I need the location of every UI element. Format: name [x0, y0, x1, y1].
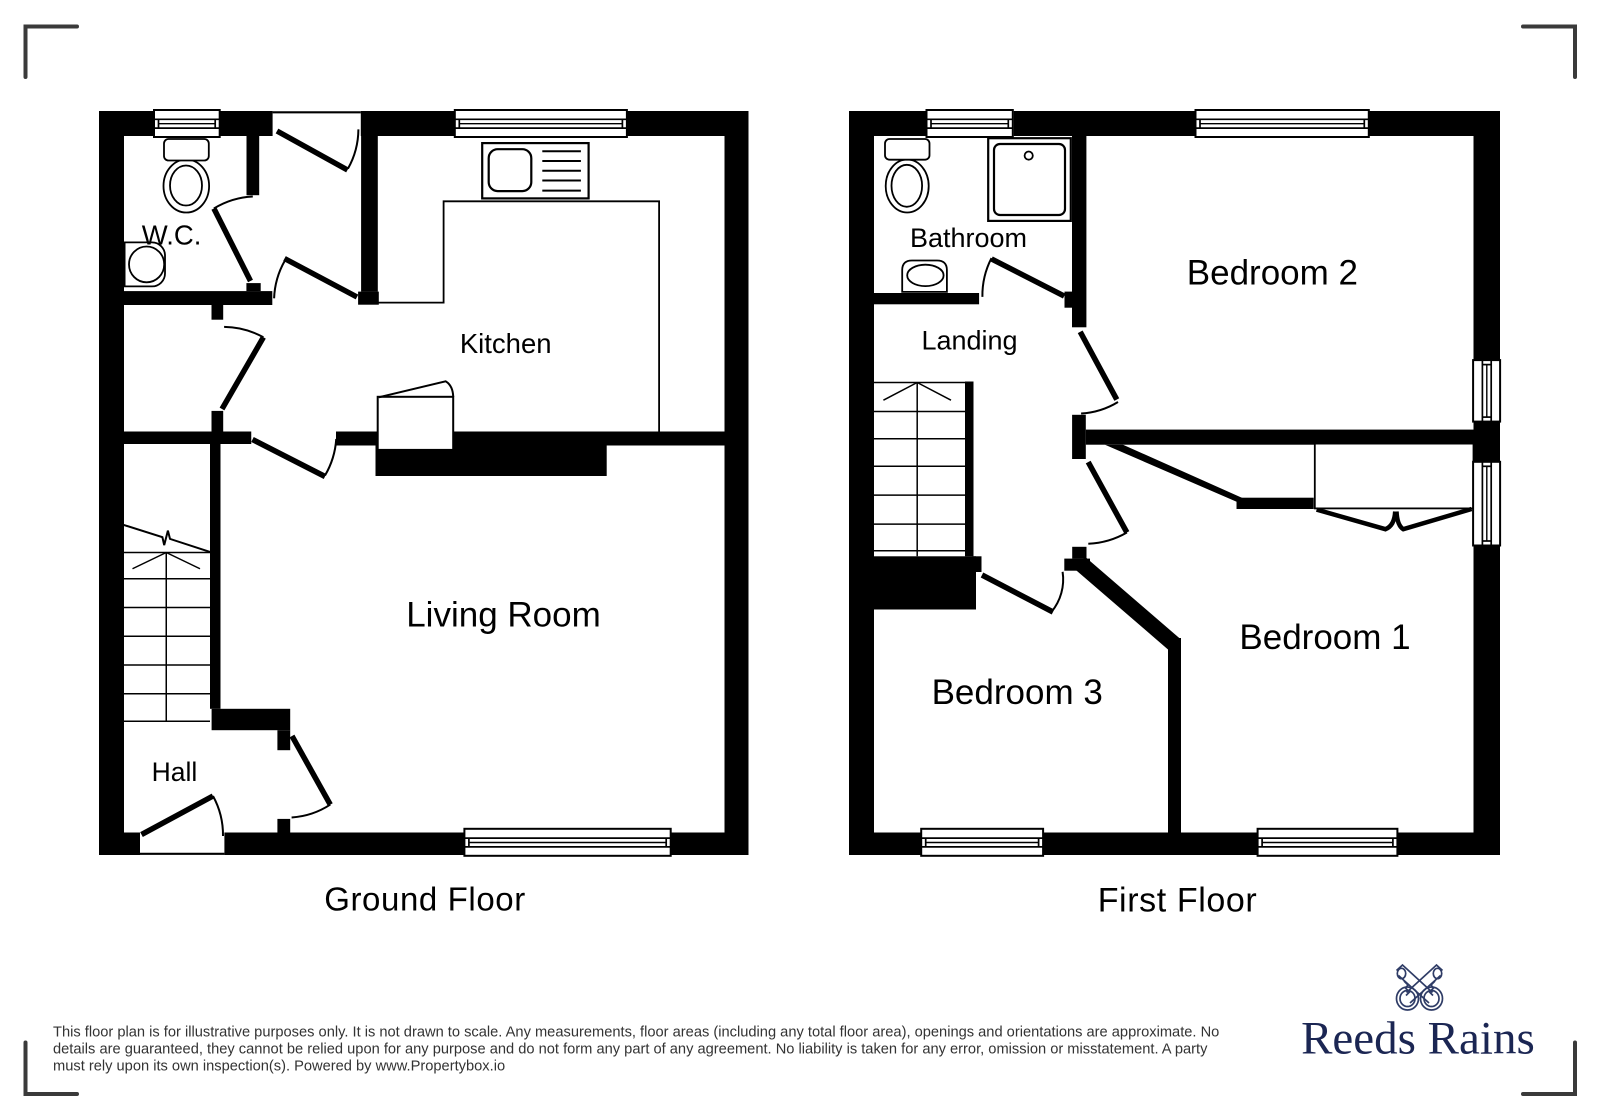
svg-text:Bathroom: Bathroom [910, 223, 1027, 253]
svg-text:Reeds Rains: Reeds Rains [1301, 1013, 1535, 1065]
svg-text:details are guaranteed, they c: details are guaranteed, they cannot be r… [53, 1042, 1208, 1058]
svg-text:Hall: Hall [152, 757, 198, 787]
svg-text:This floor plan is for illustr: This floor plan is for illustrative purp… [53, 1025, 1219, 1041]
svg-text:Kitchen: Kitchen [460, 328, 552, 359]
svg-text:Ground Floor: Ground Floor [324, 880, 526, 917]
svg-text:Bedroom 3: Bedroom 3 [932, 673, 1103, 712]
svg-text:First Floor: First Floor [1098, 881, 1258, 919]
svg-text:Bedroom 2: Bedroom 2 [1187, 254, 1358, 293]
svg-text:W.C.: W.C. [142, 220, 202, 251]
svg-text:Bedroom 1: Bedroom 1 [1239, 618, 1410, 657]
svg-text:Landing: Landing [921, 325, 1017, 355]
svg-text:must rely upon its own inspect: must rely upon its own inspection(s). Po… [53, 1059, 505, 1075]
svg-text:Living Room: Living Room [406, 596, 601, 635]
